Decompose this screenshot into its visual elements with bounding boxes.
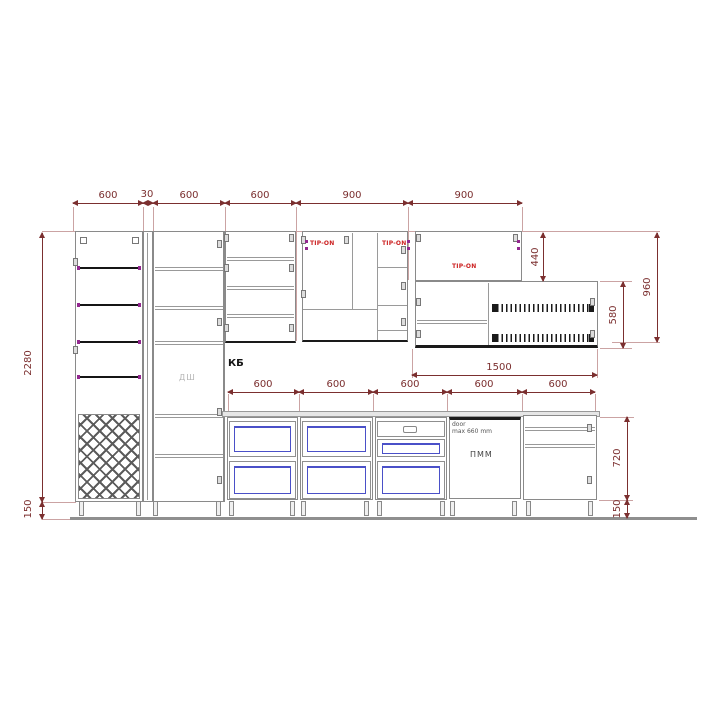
dim-text: 720	[612, 441, 624, 475]
dim-text: 960	[642, 270, 654, 304]
hinge-icon	[590, 330, 595, 338]
leg	[526, 501, 531, 516]
ext-line	[522, 394, 523, 412]
pmm-label: ПММ	[470, 450, 493, 459]
dim-text: 600	[543, 379, 573, 391]
fitting-dot	[407, 240, 410, 243]
drawer-box	[307, 426, 366, 452]
fitting-dot	[305, 247, 308, 250]
leg	[79, 501, 84, 516]
hinge-icon	[217, 318, 222, 326]
ext-line	[600, 348, 632, 349]
tip-on-label: TIP-ON	[452, 263, 476, 270]
shelf-line	[378, 267, 407, 268]
shelf-line	[303, 309, 377, 310]
dim-line	[623, 282, 624, 348]
filler-line	[147, 233, 148, 500]
floor-line	[70, 517, 697, 520]
drawer-front-line	[525, 427, 595, 431]
ext-line	[42, 502, 76, 503]
handle-recess-icon	[403, 426, 417, 433]
door-note-line2: max 660 mm	[452, 428, 492, 435]
wall-cabinet-900-b	[415, 231, 522, 281]
hinge-icon	[401, 246, 406, 254]
shelf	[77, 341, 141, 343]
shelf	[155, 341, 223, 345]
ext-line	[373, 394, 374, 412]
leg	[588, 501, 593, 516]
shelf	[227, 314, 294, 318]
hinge-icon	[401, 282, 406, 290]
shelf-line	[378, 305, 407, 306]
dim-line	[299, 392, 373, 393]
hinge-icon	[301, 290, 306, 298]
dim-text: 900	[449, 190, 479, 202]
ext-line	[522, 207, 523, 231]
hinge-icon	[224, 324, 229, 332]
leg	[153, 501, 158, 516]
dim-line	[627, 500, 628, 518]
hinge-icon	[289, 324, 294, 332]
drawer-box	[234, 426, 291, 452]
wall-cabinet-900-a	[302, 231, 408, 342]
hinge-icon	[416, 330, 421, 338]
hinge-icon	[401, 318, 406, 326]
fitting-dot	[517, 240, 520, 243]
leg	[440, 501, 445, 516]
dim-text: 580	[608, 298, 620, 332]
dim-text: 600	[321, 379, 351, 391]
dim-line	[657, 233, 658, 342]
door-note-line1: door	[452, 421, 466, 428]
dim-line	[627, 417, 628, 500]
dim-line	[73, 203, 143, 204]
dsh-label: ДШ	[179, 373, 196, 382]
leg	[229, 501, 234, 516]
hinge-icon	[344, 236, 349, 244]
fitting-dot	[407, 247, 410, 250]
door-divider	[352, 233, 353, 309]
kitchen-elevation-drawing: ДШ TIP-ON TIP-ON TIP-ON КБ	[0, 0, 702, 712]
shelf	[155, 414, 223, 418]
hinge-icon	[289, 234, 294, 242]
ext-line	[228, 394, 229, 412]
dim-text: 440	[530, 240, 542, 274]
dim-text: 900	[337, 190, 367, 202]
ext-line	[595, 394, 596, 412]
dim-line	[373, 392, 447, 393]
shelf	[155, 267, 223, 271]
shelf	[417, 320, 487, 324]
ext-line	[296, 207, 297, 341]
hinge-icon	[587, 476, 592, 484]
dim-text: 600	[395, 379, 425, 391]
hinge-icon	[590, 298, 595, 306]
shelf	[227, 286, 294, 290]
hinge-icon	[217, 240, 222, 248]
hinge-icon	[224, 234, 229, 242]
dim-text: 2280	[23, 346, 35, 380]
fitting-dot	[517, 247, 520, 250]
leg	[377, 501, 382, 516]
dim-text: 30	[132, 189, 162, 201]
dim-line	[42, 233, 43, 502]
shelf	[155, 454, 223, 458]
dim-line	[228, 392, 299, 393]
leg	[216, 501, 221, 516]
dim-line	[412, 375, 597, 376]
dim-text: 150	[23, 492, 35, 526]
cabinet-divider	[488, 283, 489, 345]
corner-fitting	[80, 237, 87, 244]
tall-cabinet-dsh	[153, 231, 225, 502]
dim-line	[543, 233, 544, 281]
kb-label: КБ	[228, 358, 244, 369]
drawer-box	[307, 466, 366, 494]
dish-drying-rack	[492, 334, 594, 342]
shelf	[77, 376, 141, 378]
shelf-line	[378, 330, 407, 331]
shelf	[155, 306, 223, 310]
corner-fitting	[132, 237, 139, 244]
drawer-box	[234, 466, 291, 494]
shelf	[77, 304, 141, 306]
hinge-icon	[217, 476, 222, 484]
hinge-icon	[73, 258, 78, 266]
ext-line	[42, 519, 72, 520]
leg	[364, 501, 369, 516]
hinge-icon	[416, 298, 421, 306]
shelf	[77, 267, 141, 269]
ext-line	[299, 394, 300, 412]
wine-rack-lattice	[78, 414, 140, 499]
dim-line	[153, 203, 225, 204]
hinge-icon	[73, 346, 78, 354]
door-divider	[377, 233, 378, 340]
drawer-front-line	[525, 444, 595, 448]
ext-line	[143, 207, 144, 231]
ext-line	[600, 281, 632, 282]
dim-line	[408, 203, 522, 204]
hinge-icon	[224, 264, 229, 272]
dim-text: 600	[174, 190, 204, 202]
dim-line	[225, 203, 296, 204]
hinge-icon	[587, 424, 592, 432]
dish-drying-rack	[492, 304, 594, 312]
dim-line	[447, 392, 522, 393]
dim-text: 150	[612, 492, 624, 526]
dim-text: 1500	[484, 362, 514, 374]
leg	[136, 501, 141, 516]
dim-text: 600	[469, 379, 499, 391]
dim-line	[296, 203, 408, 204]
dim-text: 600	[93, 190, 123, 202]
leg	[450, 501, 455, 516]
ext-line	[408, 207, 409, 280]
filler-panel	[143, 231, 153, 502]
door-max-note: door max 660 mm	[452, 421, 496, 435]
ext-line	[153, 207, 154, 231]
leg	[301, 501, 306, 516]
dim-line	[522, 392, 595, 393]
leg	[512, 501, 517, 516]
dim-text: 600	[245, 190, 275, 202]
ext-line	[73, 207, 74, 231]
ext-line	[447, 394, 448, 412]
hinge-icon	[416, 234, 421, 242]
leg	[290, 501, 295, 516]
tip-on-label: TIP-ON	[310, 240, 334, 247]
fitting-dot	[305, 240, 308, 243]
hinge-icon	[289, 264, 294, 272]
dim-text: 600	[248, 379, 278, 391]
drawer-box	[382, 443, 440, 454]
drawer-box	[382, 466, 440, 494]
shelf	[227, 257, 294, 261]
ext-line	[225, 207, 226, 231]
dim-line	[42, 502, 43, 519]
